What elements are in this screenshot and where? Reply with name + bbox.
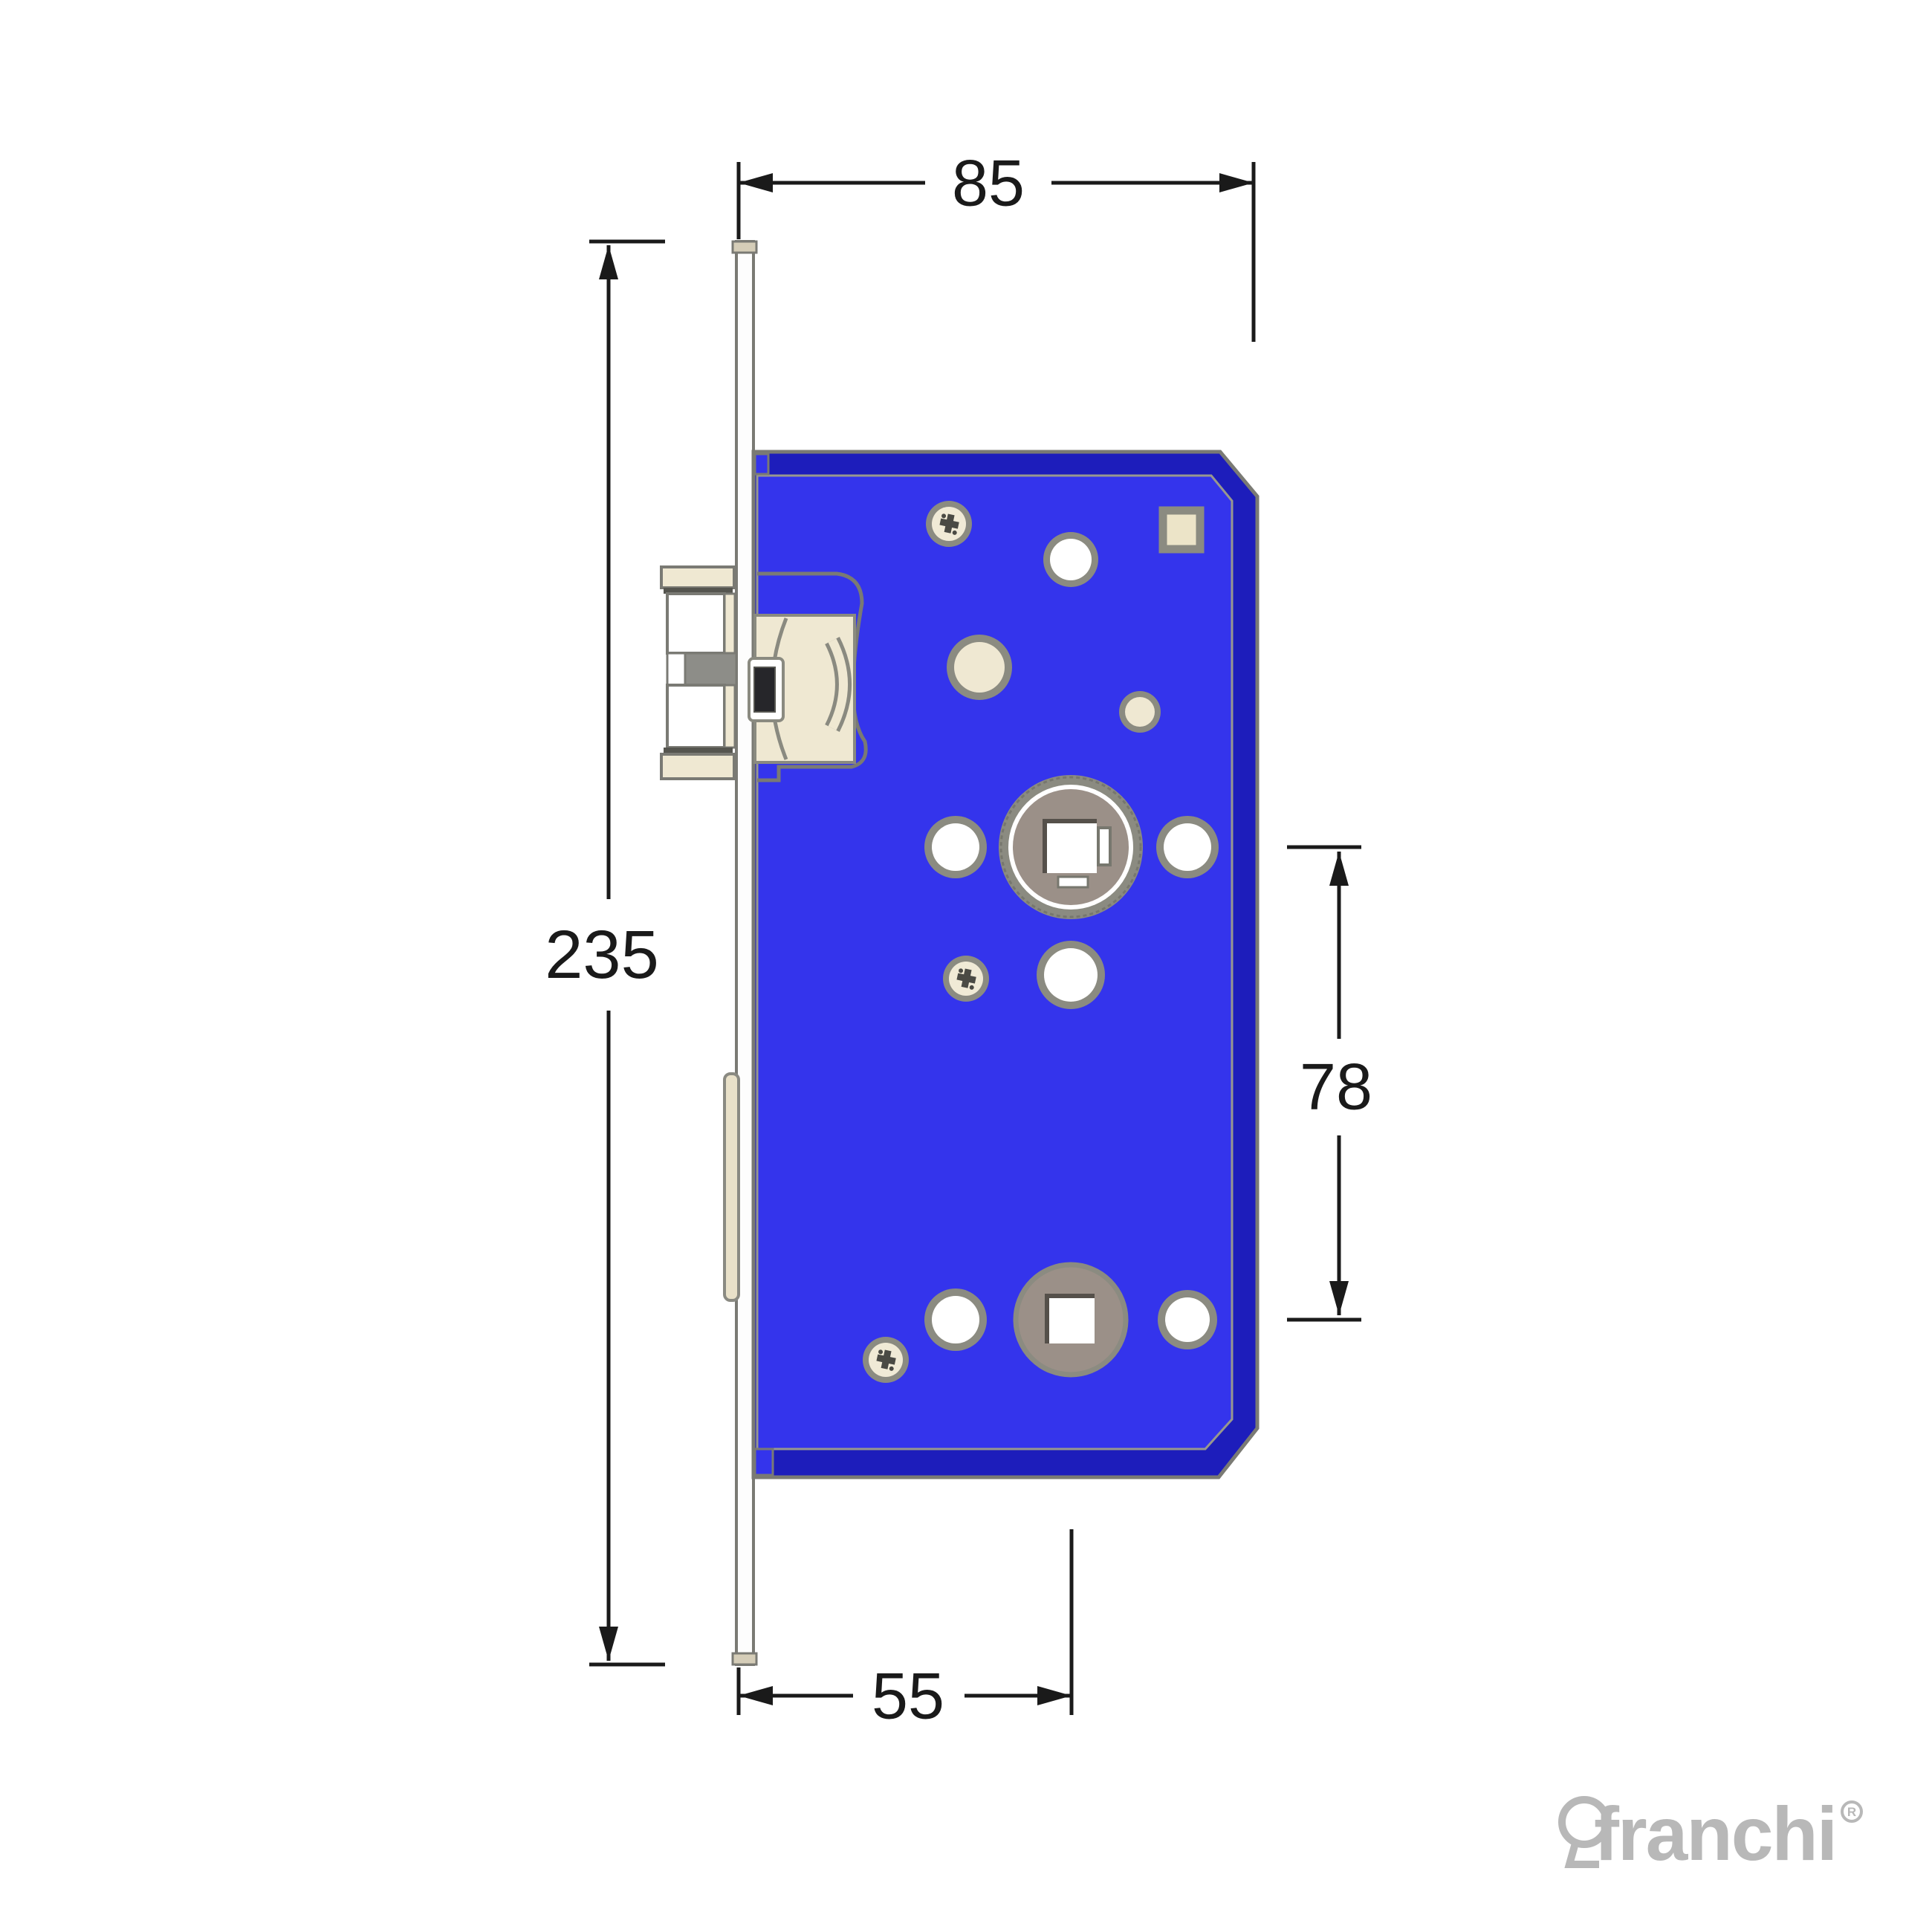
- latch-lower-side: [724, 685, 735, 748]
- follower-hub: [999, 775, 1143, 919]
- screw-hole-bottom: [863, 1337, 909, 1383]
- screw-hole-top: [926, 501, 972, 547]
- hole-mid: [954, 642, 1005, 693]
- registered-mark-letter: R: [1847, 1805, 1856, 1819]
- dim-235-label: 235: [545, 917, 659, 993]
- hole-small: [1125, 697, 1155, 727]
- follower-tab: [1098, 828, 1110, 865]
- dim-235-arrow-bottom: [599, 1627, 618, 1661]
- follower-foot: [1058, 877, 1088, 887]
- hole-bottom-left: [932, 1296, 979, 1343]
- body-notch-bottom-left: [755, 1449, 773, 1475]
- dim-55-label: 55: [872, 1659, 944, 1733]
- faceplate-strip: [736, 241, 753, 1664]
- latch-mid-slot: [667, 653, 685, 685]
- follower-square-hole: [1045, 821, 1097, 873]
- bottom-hub: [1016, 1265, 1126, 1375]
- latch-bottom-flange: [661, 754, 734, 779]
- dim-55-arrow-left: [739, 1686, 773, 1705]
- faceplate-top-cap: [733, 241, 756, 253]
- dimension-faceplate-height: 235: [545, 241, 665, 1664]
- latch-lower-block: [667, 685, 724, 748]
- hole-below-hub: [1044, 948, 1098, 1002]
- latch-upper-block: [667, 594, 724, 653]
- faceplate-bottom-cap: [733, 1653, 756, 1664]
- hole-left-of-hub: [932, 823, 979, 871]
- dimension-backset: 55: [739, 1529, 1072, 1733]
- dimension-case-depth: 85: [739, 146, 1254, 343]
- hole-right-of-hub: [1164, 823, 1211, 871]
- brand-logo-text: franchi: [1594, 1792, 1836, 1876]
- lock-technical-drawing: 85 235 78 55 franchi R: [0, 0, 1932, 1932]
- dim-85-arrow-left: [739, 173, 773, 192]
- dim-85-label: 85: [952, 146, 1025, 220]
- screw-hole-mid: [943, 956, 989, 1002]
- brand-logo: franchi R: [1562, 1792, 1861, 1876]
- dim-85-arrow-right: [1219, 173, 1254, 192]
- latch-mid-block: [685, 653, 736, 685]
- dim-78-label: 78: [1300, 1050, 1372, 1124]
- bottom-hub-square-hole: [1047, 1296, 1095, 1343]
- auxiliary-bolt-strip: [724, 1074, 739, 1300]
- latch-shaft: [754, 667, 775, 712]
- square-opening: [1163, 510, 1200, 549]
- hole-top: [1050, 539, 1092, 580]
- dimension-hub-spacing: 78: [1287, 847, 1372, 1320]
- latch-upper-side: [724, 594, 735, 653]
- body-notch-top-left: [755, 454, 768, 474]
- latch-top-flange: [661, 567, 734, 588]
- dim-78-arrow-bottom: [1329, 1281, 1349, 1315]
- dim-235-arrow-top: [599, 245, 618, 279]
- hole-bottom-right: [1165, 1297, 1210, 1342]
- latch-bolt-head: [661, 567, 736, 779]
- dim-55-arrow-right: [1037, 1686, 1072, 1705]
- dim-78-arrow-top: [1329, 852, 1349, 886]
